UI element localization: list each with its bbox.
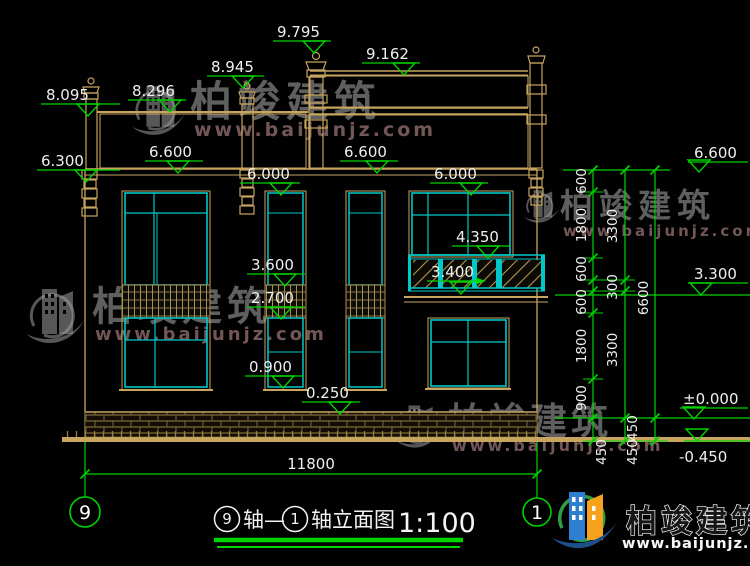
title-axis-left: 9: [222, 510, 232, 528]
svg-text:6600: 6600: [636, 281, 652, 315]
svg-text:3300: 3300: [605, 209, 621, 243]
window-narrow-2: [344, 191, 387, 390]
elevation-marker: 9.795: [273, 23, 331, 53]
drawing-canvas: 柏竣建筑 www.baijunjz.com 柏竣建筑 www.baijunjz.…: [0, 0, 750, 566]
svg-text:1800: 1800: [574, 329, 590, 363]
overall-width-dim: 11800: [287, 455, 335, 473]
footer-logo: 柏竣建筑 www.baijunjz.com: [552, 492, 750, 552]
svg-text:4.350: 4.350: [456, 228, 499, 246]
svg-text:-0.450: -0.450: [679, 448, 727, 466]
ground-hatch-ticks: [64, 431, 538, 437]
axis-bubble-left: 9: [70, 497, 100, 527]
svg-text:9.162: 9.162: [366, 45, 409, 63]
title-axis-right: 1: [290, 510, 300, 528]
elevation-marker: -0.450: [679, 429, 750, 466]
svg-text:6.600: 6.600: [149, 143, 192, 161]
svg-text:9: 9: [79, 502, 91, 524]
drawing-title: 9 轴— 1 轴立面图 1:100: [214, 507, 476, 548]
svg-text:0.900: 0.900: [249, 358, 292, 376]
svg-text:8.095: 8.095: [46, 86, 89, 104]
title-name: 轴立面图: [311, 508, 395, 532]
title-scale: 1:100: [398, 508, 476, 539]
railing-band: [346, 285, 385, 318]
elevation-marker: 3.600: [247, 256, 305, 286]
svg-text:300: 300: [605, 274, 621, 300]
footer-brand-url: www.baijunjz.com: [622, 536, 750, 552]
balcony-glass-panel: [502, 260, 541, 288]
window-left-large: [119, 191, 213, 390]
svg-text:±0.000: ±0.000: [683, 390, 739, 408]
svg-text:900: 900: [574, 385, 590, 411]
elevation-marker: 6.600: [688, 144, 748, 172]
window-right-lower: [425, 318, 511, 389]
svg-text:6.600: 6.600: [344, 143, 387, 161]
svg-text:1800: 1800: [574, 208, 590, 242]
svg-text:1: 1: [531, 502, 543, 524]
watermark-url: www.baijunjz.com: [194, 119, 436, 141]
cad-elevation-drawing: 柏竣建筑 www.baijunjz.com 柏竣建筑 www.baijunjz.…: [0, 0, 750, 566]
svg-text:3300: 3300: [605, 333, 621, 367]
svg-text:www.baijunjz.com: www.baijunjz.com: [563, 222, 750, 240]
elevation-marker: 4.350: [452, 228, 510, 258]
axis-bubble-right: 1: [523, 498, 551, 526]
elevation-marker: 6.300: [37, 152, 120, 182]
svg-text:www.baijunjz.com: www.baijunjz.com: [95, 324, 327, 345]
elevation-marker: 0.250: [302, 384, 360, 414]
svg-text:3.300: 3.300: [694, 265, 737, 283]
svg-text:8.945: 8.945: [211, 58, 254, 76]
svg-text:2.700: 2.700: [251, 289, 294, 307]
balcony-glass-panel: [477, 260, 496, 288]
svg-text:6.300: 6.300: [41, 152, 84, 170]
footer-brand-text: 柏竣建筑: [626, 504, 750, 540]
svg-text:3.400: 3.400: [431, 263, 474, 281]
svg-text:450: 450: [625, 439, 641, 465]
railing-band: [122, 285, 210, 318]
elevation-markers: 8.095 8.296 8.945 9.795 9.162 6.300 6.60…: [37, 23, 750, 466]
svg-text:450: 450: [594, 439, 610, 465]
title-mid: 轴—: [243, 508, 285, 532]
brand-logo-building-blue: [569, 492, 585, 540]
svg-text:6.000: 6.000: [247, 165, 290, 183]
svg-text:600: 600: [574, 289, 590, 315]
svg-text:600: 600: [574, 168, 590, 194]
svg-text:9.795: 9.795: [277, 23, 320, 41]
watermark-top: 柏竣建筑 www.baijunjz.com: [132, 77, 436, 141]
watermark-mid-right: 柏竣建筑 www.baijunjz.com: [524, 186, 750, 240]
svg-text:6.000: 6.000: [434, 165, 477, 183]
svg-text:0.250: 0.250: [306, 384, 349, 402]
svg-text:3.600: 3.600: [251, 256, 294, 274]
svg-text:450: 450: [625, 415, 641, 441]
svg-text:600: 600: [574, 256, 590, 282]
watermark-logo-icon: [26, 289, 86, 343]
elevation-marker: 0.900: [245, 358, 303, 388]
svg-text:8.296: 8.296: [132, 82, 175, 100]
